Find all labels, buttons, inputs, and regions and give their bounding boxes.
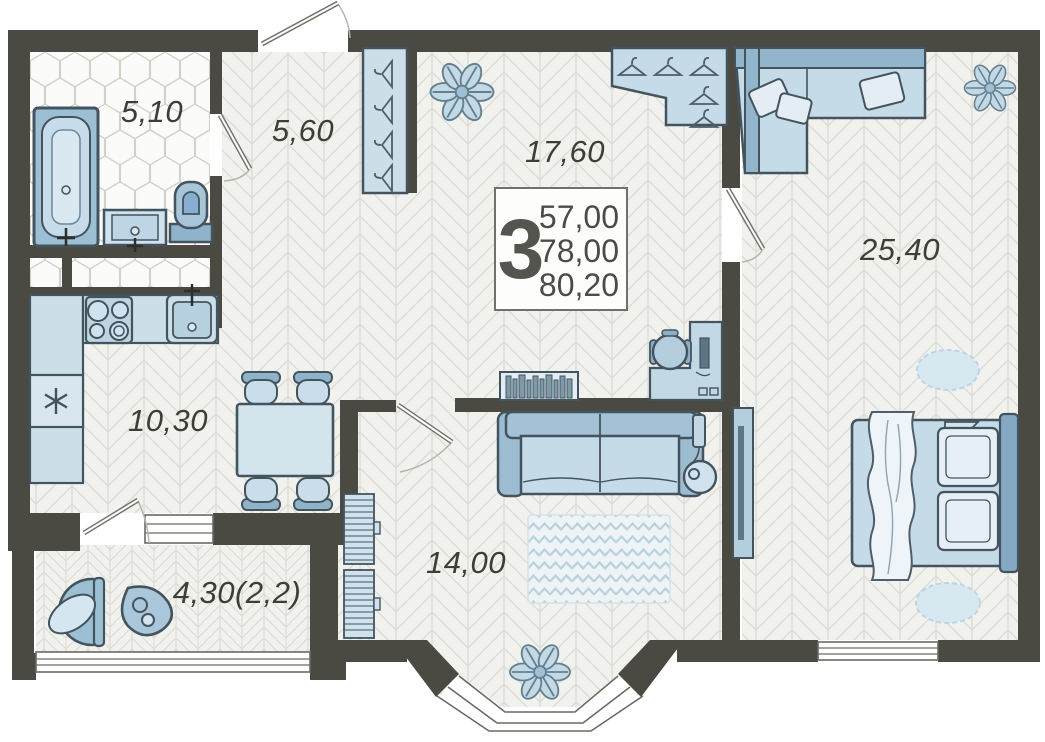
room-label-lounge: 14,00	[426, 545, 506, 580]
wall	[62, 258, 72, 287]
dining-chair	[242, 478, 280, 510]
wall	[310, 540, 338, 655]
pillow	[938, 492, 998, 550]
radiator	[344, 494, 380, 564]
room-label-bedroom: 25,40	[859, 232, 940, 267]
wall	[12, 551, 34, 655]
dining-chair	[294, 372, 332, 404]
pillow	[938, 428, 998, 486]
headboard	[1000, 414, 1018, 572]
floor-plan: 3 57,00 78,00 80,20 5,10 5,60 17,60 25,4…	[0, 0, 1045, 742]
room-label-hallway: 5,60	[272, 113, 334, 148]
room-label-kitchen: 10,30	[128, 403, 208, 438]
closet-floor-left	[30, 258, 62, 287]
bathtub	[34, 108, 98, 246]
floor-plan-canvas: 3 57,00 78,00 80,20 5,10 5,60 17,60 25,4…	[0, 0, 1045, 742]
stove	[86, 297, 132, 343]
wall	[938, 640, 1040, 662]
badge-area-0: 57,00	[539, 199, 619, 235]
toilet	[170, 182, 212, 242]
hall-closet	[363, 48, 407, 193]
tv	[733, 408, 753, 558]
blanket-drape	[868, 412, 916, 580]
dining-chair	[294, 478, 332, 510]
monitor-icon	[700, 338, 709, 368]
wall	[8, 513, 80, 551]
living-sofa	[498, 412, 703, 496]
wall	[8, 30, 30, 551]
bed	[852, 412, 1018, 580]
badge-area-1: 78,00	[539, 233, 619, 269]
rug	[916, 583, 980, 623]
bedroom-window	[818, 642, 938, 660]
unit-info-box: 3 57,00 78,00 80,20	[495, 188, 627, 310]
room-label-living: 17,60	[525, 134, 605, 169]
kitchen-window	[145, 515, 213, 543]
badge-room-count: 3	[498, 202, 545, 296]
room-label-bathroom: 5,10	[121, 94, 183, 129]
bookshelf	[500, 372, 578, 400]
radiator	[344, 570, 380, 638]
badge-area-2: 80,20	[539, 267, 619, 303]
rug	[528, 515, 670, 603]
washbasin	[104, 210, 166, 252]
wall	[12, 653, 36, 680]
wall	[742, 640, 818, 662]
wall	[8, 30, 258, 52]
rug	[917, 350, 979, 390]
dining-table	[237, 404, 333, 476]
dining-chair	[242, 372, 280, 404]
wall	[677, 640, 742, 662]
balcony-window	[36, 652, 310, 672]
closet-floor-right	[72, 258, 210, 287]
room-label-balcony: 4,30(2,2)	[173, 575, 302, 610]
wall	[210, 52, 222, 114]
wall	[1018, 30, 1040, 662]
